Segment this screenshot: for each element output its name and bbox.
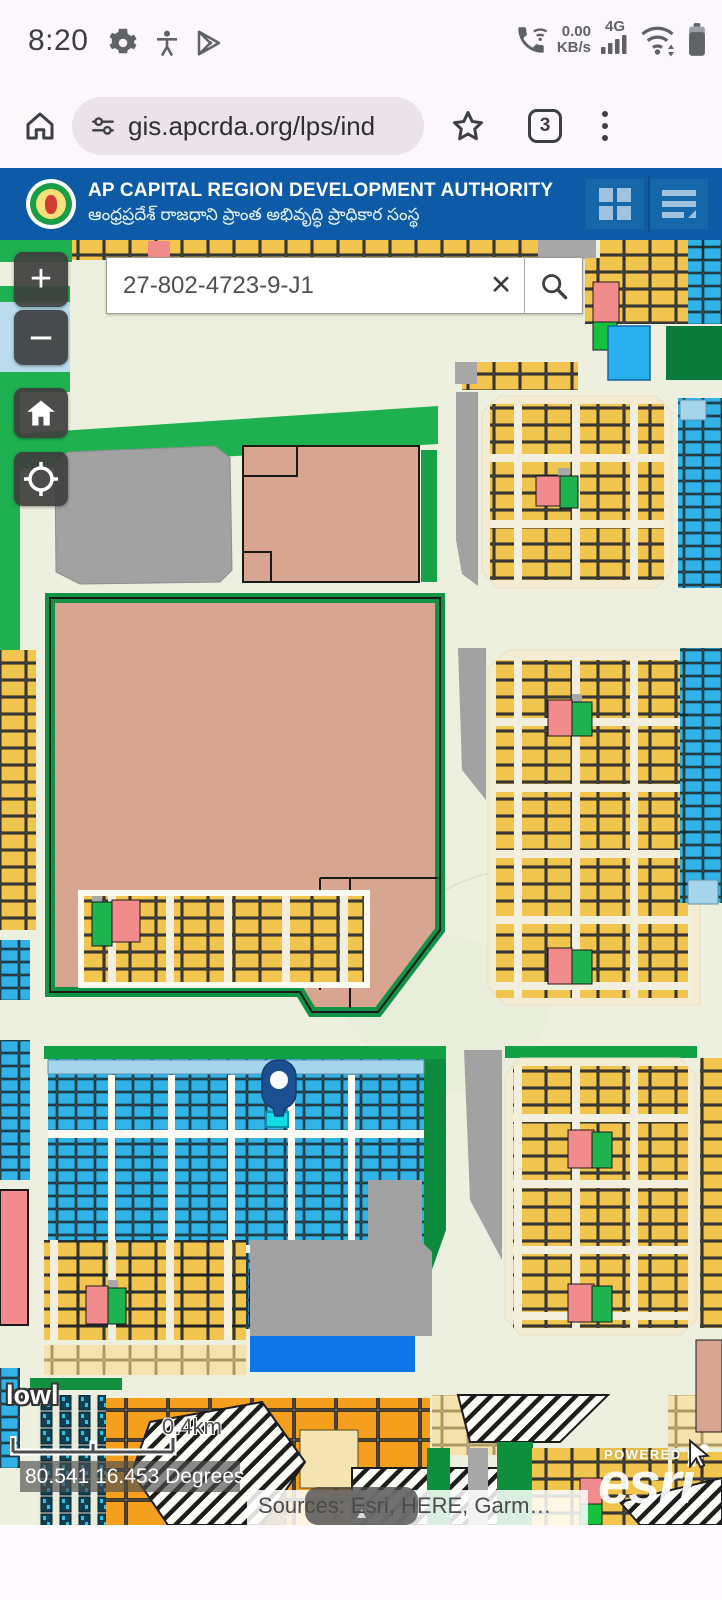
home-icon: [26, 399, 56, 427]
search-icon: [540, 272, 568, 300]
battery-icon: [688, 23, 706, 57]
apps-grid-button[interactable]: [586, 179, 644, 229]
parcel-search-box: 27-802-4723-9-J1 ✕: [106, 257, 583, 314]
wifi-icon: [639, 22, 679, 58]
status-time: 8:20: [28, 24, 88, 58]
grid-icon: [595, 184, 635, 224]
site-settings-icon[interactable]: [90, 113, 116, 139]
url-text[interactable]: gis.apcrda.org/lps/ind: [128, 111, 375, 142]
wifi-calling-icon: [514, 23, 548, 57]
cellular-signal: 4G: [600, 20, 630, 59]
header-title: AP CAPITAL REGION DEVELOPMENT AUTHORITY: [88, 180, 586, 202]
play-store-icon: [194, 28, 224, 58]
signal-bars-icon: [600, 34, 630, 54]
zoom-in-label: +: [30, 258, 52, 301]
browser-menu-icon[interactable]: [602, 111, 608, 141]
tab-switcher-button[interactable]: 3: [528, 109, 562, 143]
map-locate-button[interactable]: [14, 452, 68, 506]
crosshair-locate-icon: [24, 462, 58, 496]
android-status-bar: 8:20 0.00 KB/s 4G: [0, 0, 722, 84]
tab-count: 3: [540, 115, 551, 137]
zoom-out-button[interactable]: −: [14, 310, 68, 365]
apcrda-header: AP CAPITAL REGION DEVELOPMENT AUTHORITY …: [0, 168, 722, 240]
search-input[interactable]: 27-802-4723-9-J1: [107, 272, 478, 300]
accessibility-person-icon: [152, 28, 182, 58]
header-subtitle-telugu: ఆంధ్రప్రదేశ్ రాజధాని ప్రాంత అభివృద్ధి ప్…: [88, 205, 586, 229]
coordinates-readout: 80.541 16.453 Degrees: [20, 1461, 240, 1492]
attribution-text: Sources: Esri, HERE, Garm…: [258, 1493, 551, 1519]
scale-bar: [10, 1436, 180, 1456]
apcrda-logo: [26, 179, 76, 229]
esri-logo: esri: [598, 1450, 693, 1517]
mouse-cursor-icon: [688, 1438, 714, 1468]
browser-toolbar: gis.apcrda.org/lps/ind 3: [0, 84, 722, 168]
phone-screen: 8:20 0.00 KB/s 4G: [0, 0, 722, 1600]
zoom-in-button[interactable]: +: [14, 252, 68, 307]
search-clear-icon[interactable]: ✕: [478, 270, 524, 301]
browser-home-icon[interactable]: [22, 108, 58, 144]
android-nav-bar: [0, 1525, 722, 1600]
map-home-extent-button[interactable]: [14, 388, 68, 438]
settings-gear-icon: [108, 28, 138, 58]
header-text: AP CAPITAL REGION DEVELOPMENT AUTHORITY …: [88, 180, 586, 229]
layers-menu-button[interactable]: [650, 179, 708, 229]
search-submit-button[interactable]: [525, 272, 582, 300]
zoom-out-label: −: [29, 314, 54, 362]
basemap-place-label: lowl: [6, 1380, 59, 1411]
url-bar[interactable]: gis.apcrda.org/lps/ind: [72, 97, 424, 155]
menu-layers-icon: [658, 184, 700, 224]
bookmark-star-icon[interactable]: [450, 108, 486, 144]
map-canvas[interactable]: [0, 0, 722, 1600]
data-rate: 0.00 KB/s: [557, 24, 591, 56]
